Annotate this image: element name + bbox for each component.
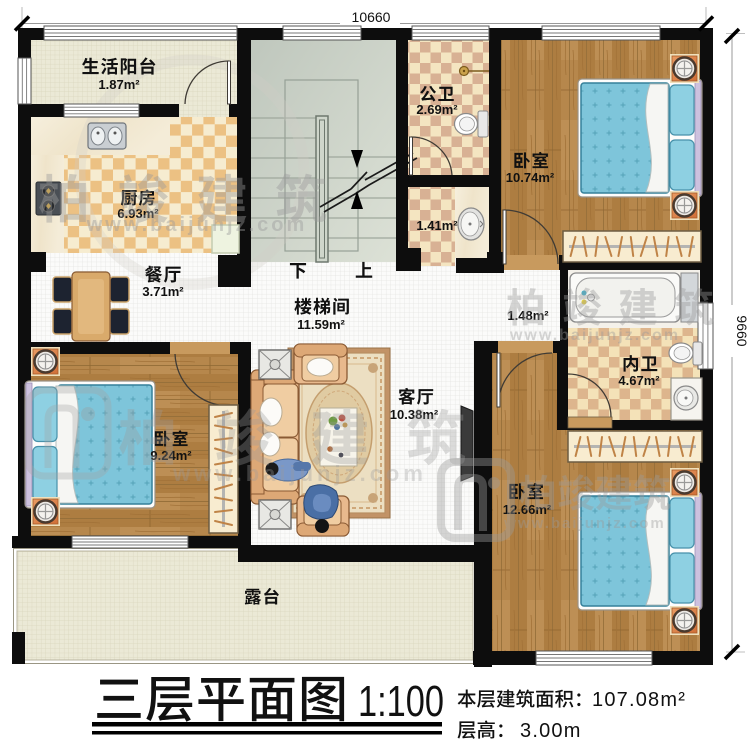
svg-text:1:100: 1:100 [358, 677, 444, 726]
svg-text:www.baijunjz.com: www.baijunjz.com [172, 461, 427, 486]
svg-text:www.baijunjz.com: www.baijunjz.com [509, 327, 680, 344]
svg-text:1.87m²: 1.87m² [98, 77, 140, 92]
svg-text:11.59m²: 11.59m² [297, 317, 345, 332]
svg-text:www.baijunjz.com: www.baijunjz.com [86, 214, 308, 236]
svg-text:3.71m²: 3.71m² [142, 284, 184, 299]
svg-text:4.67m²: 4.67m² [618, 373, 660, 388]
svg-text:9660: 9660 [734, 315, 750, 346]
svg-text:10660: 10660 [352, 9, 391, 25]
svg-text:10.74m²: 10.74m² [506, 170, 555, 185]
svg-text:www.baijunjz.com: www.baijunjz.com [503, 515, 665, 532]
svg-text:2.69m²: 2.69m² [416, 102, 458, 117]
svg-text:1.41m²: 1.41m² [416, 218, 458, 233]
svg-text:107.08m²: 107.08m² [592, 689, 686, 711]
svg-text:3.00m: 3.00m [520, 720, 582, 742]
